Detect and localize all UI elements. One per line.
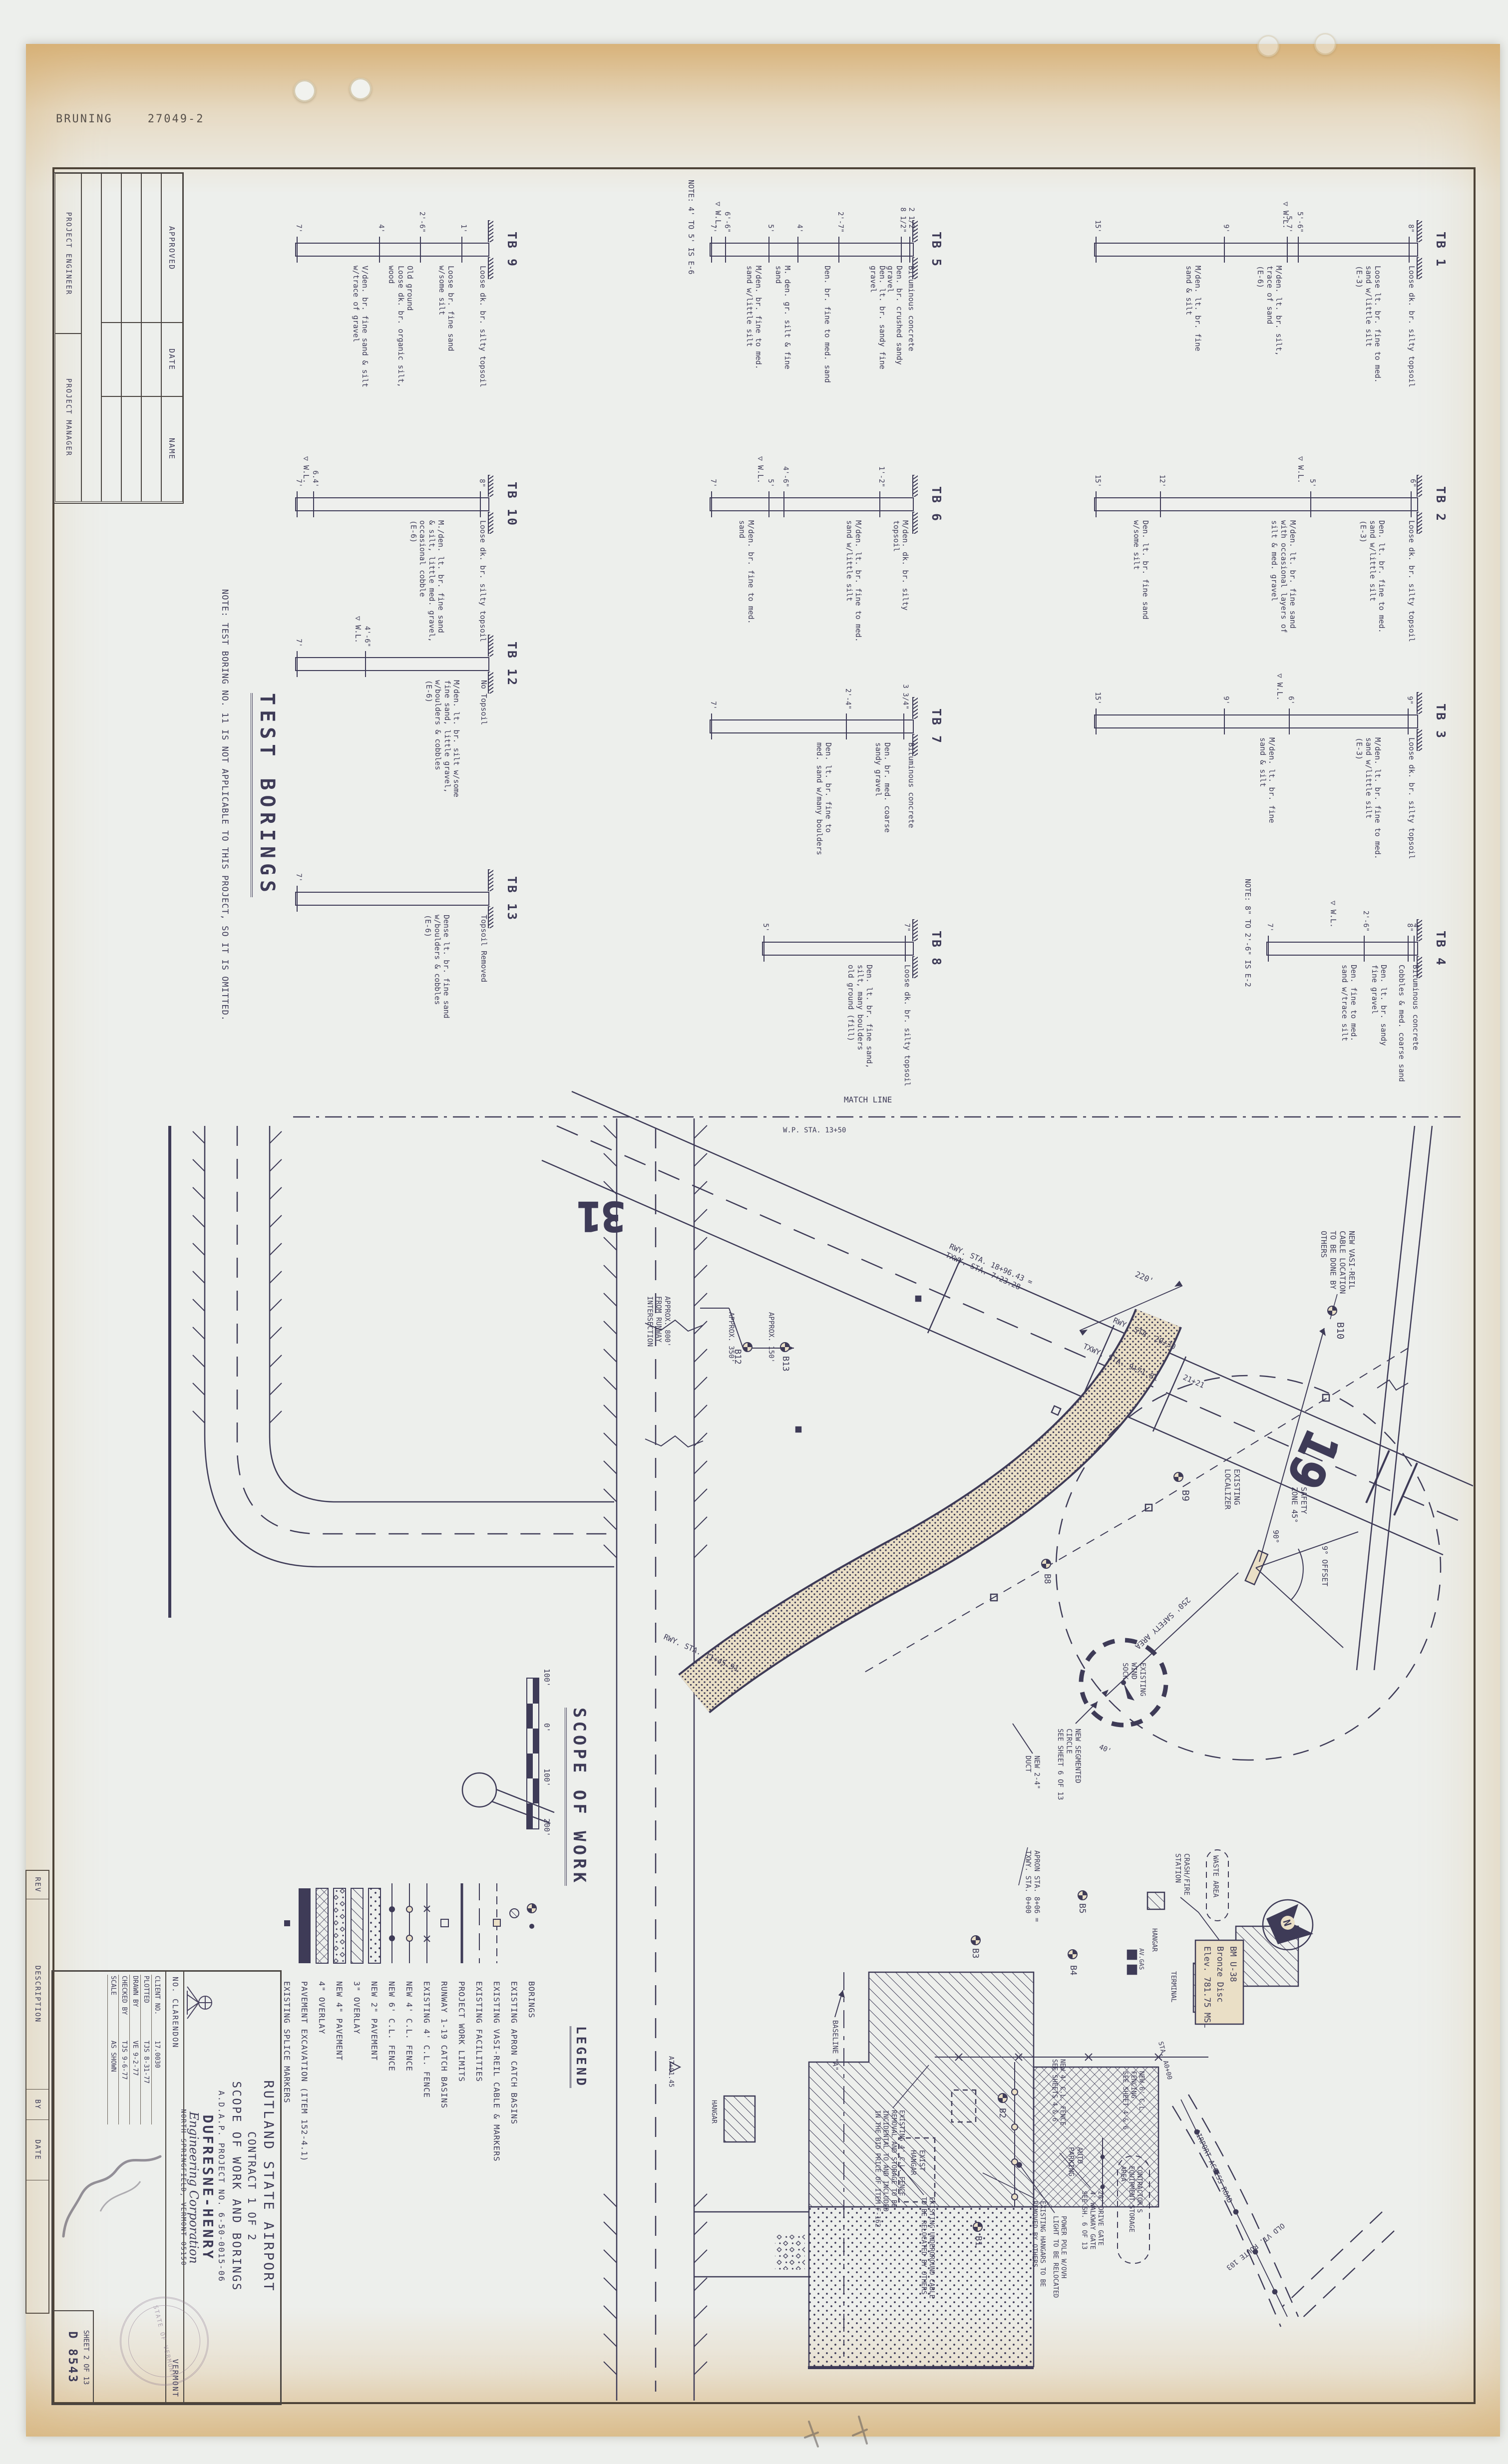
boring-title: TB 7 bbox=[929, 652, 944, 801]
plan-label: NEW SEGMENTEDCIRCLESEE SHEET 6 OF 13 bbox=[1056, 1729, 1082, 1800]
legend-item-rwy-cb: RUNWAY 1-19 CATCH BASINS bbox=[436, 1878, 453, 2109]
boring-column bbox=[1094, 243, 1418, 257]
rwy-cb-symbol bbox=[437, 1878, 451, 1981]
plan-label: HANGAR bbox=[1150, 1928, 1158, 1952]
plan-label: 31 bbox=[577, 1193, 625, 1239]
soil-description: No Topsoil bbox=[479, 680, 488, 805]
plan-label: B1 bbox=[973, 2236, 983, 2246]
depth-tick bbox=[905, 936, 906, 962]
boring-column bbox=[1094, 714, 1418, 728]
soil-description: Den. br. med. coarse sandy gravel bbox=[873, 742, 892, 867]
ground-hatch bbox=[1417, 220, 1422, 242]
boring-title: TB 1 bbox=[1434, 175, 1448, 325]
boring-title: TB 10 bbox=[505, 429, 519, 579]
soil-description: M/den. lt. br. fine to med. sand w/littl… bbox=[1355, 737, 1382, 862]
empty-cell bbox=[121, 396, 142, 502]
soil-description: Den. lt. br. fine sand w/some silt bbox=[1131, 520, 1150, 645]
depth-label: 2'-4" bbox=[844, 656, 852, 709]
test-borings-title: TEST BORINGS bbox=[251, 693, 279, 897]
soil-description: Loose dk. br. silty topsoil bbox=[1407, 520, 1416, 645]
legend-label: EXISTING VASI-REIL CABLE & MARKERS bbox=[492, 1981, 502, 2162]
empty-cell bbox=[121, 322, 142, 397]
boring-column bbox=[295, 497, 489, 511]
boring-column bbox=[1094, 497, 1418, 511]
depth-label: 2'-6" bbox=[418, 179, 426, 233]
boring-symbol bbox=[525, 1878, 539, 1981]
boring-title: TB 9 bbox=[505, 175, 519, 325]
pencil-marks bbox=[779, 2402, 1029, 2462]
depth-label: 4'-6" bbox=[363, 593, 371, 647]
depth-tick bbox=[711, 713, 712, 739]
info-label: SCALE bbox=[109, 1976, 117, 2041]
splice-symbol bbox=[280, 1878, 294, 1981]
legend-label: NEW 4' C.L. FENCE bbox=[405, 1981, 414, 2072]
depth-tick bbox=[1414, 936, 1415, 962]
depth-label: 5'-6" bbox=[1296, 179, 1304, 233]
ground-hatch bbox=[488, 257, 493, 279]
depth-label: 7' bbox=[295, 593, 303, 647]
depth-tick bbox=[1160, 491, 1161, 517]
depth-tick bbox=[297, 491, 298, 517]
swatch-cross-symbol bbox=[315, 1878, 329, 1981]
ground-hatch bbox=[1417, 257, 1422, 279]
depth-label: 7" bbox=[903, 878, 911, 932]
boring-marker bbox=[1042, 1559, 1051, 1568]
stamp-text: STATE OF VERMONT bbox=[152, 2305, 176, 2378]
soil-description: M/den. br. fine to med. sand bbox=[737, 520, 755, 645]
depth-label: 6" bbox=[1409, 433, 1417, 487]
plan-label: 9° OFFSET bbox=[1320, 1546, 1329, 1586]
info-value: VE 9-2-77 bbox=[131, 2041, 139, 2076]
depth-label: 2'-7" bbox=[836, 179, 844, 233]
soil-description: Den. fine to med. sand w/trace silt bbox=[1340, 965, 1358, 1089]
depth-label: 2'-6" bbox=[1362, 878, 1370, 932]
plan-label: APRON STA. 8+06 =TXWY. STA. 0+00 bbox=[1024, 1850, 1041, 1922]
description-header: DESCRIPTION bbox=[26, 1899, 48, 2090]
boring-marker bbox=[1078, 1891, 1087, 1900]
soil-description: Loose br. fine sand w/some silt bbox=[437, 266, 455, 390]
legend-label: BORINGS bbox=[527, 1981, 537, 2018]
info-value: 17.0030 bbox=[153, 2041, 161, 2068]
soil-description: Loose lt. br. fine to med. sand w/little… bbox=[1355, 266, 1382, 390]
scope-of-work-title: SCOPE OF WORK bbox=[565, 1708, 589, 1886]
depth-label: 5' bbox=[761, 878, 769, 932]
depth-label: 5' bbox=[766, 433, 774, 487]
info-label: CLIENT NO. bbox=[153, 1976, 161, 2041]
boring-marker bbox=[1068, 1950, 1077, 1959]
exist-fac-symbol bbox=[472, 1878, 486, 1981]
revision-block: REV DESCRIPTION BY DATE bbox=[25, 1870, 49, 2314]
depth-tick bbox=[365, 651, 366, 677]
water-level-marker: ▽ W.L. bbox=[1296, 438, 1305, 483]
depth-tick bbox=[903, 713, 904, 739]
empty-cell bbox=[141, 396, 162, 502]
legend-label: PROJECT WORK LIMITS bbox=[457, 1981, 467, 2082]
depth-tick bbox=[1224, 708, 1225, 734]
depth-tick bbox=[1298, 237, 1299, 263]
boring-marker bbox=[971, 1936, 980, 1945]
boring-column bbox=[295, 892, 489, 906]
depth-tick bbox=[838, 237, 839, 263]
depth-label: 15' bbox=[1094, 651, 1102, 704]
depth-tick bbox=[711, 491, 712, 517]
sheet-number-cell: SHEET 2 OF 13 D 8543 bbox=[53, 2310, 94, 2404]
legend-label: NEW 2" PAVEMENT bbox=[370, 1981, 379, 2061]
ground-hatch bbox=[1417, 729, 1422, 751]
depth-tick bbox=[1287, 237, 1288, 263]
plan-label: AIRPORT ACCESS ROAD bbox=[1192, 2128, 1233, 2204]
empty-cell bbox=[81, 173, 102, 502]
boring-marker bbox=[780, 1343, 789, 1352]
ground-hatch bbox=[488, 475, 493, 497]
plan-label: NEW 2-4"DUCT bbox=[1024, 1756, 1041, 1789]
drawing-titles: RUTLAND STATE AIRPORT CONTRACT 1 OF 2 SC… bbox=[217, 2032, 276, 2341]
boring-title: TB 12 bbox=[505, 589, 519, 739]
legend-item-boring: BORINGS bbox=[523, 1878, 540, 2018]
landscape-sheet: APPROVED DATE NAME PROJECT ENGINEER PROJ… bbox=[0, 0, 1508, 2464]
boring-column bbox=[295, 243, 489, 257]
depth-label: 9" bbox=[1406, 651, 1414, 704]
depth-label: 6' bbox=[1287, 651, 1295, 704]
soil-description: M./den. lt. br. fine sand & silt, little… bbox=[409, 520, 445, 645]
boring-marker bbox=[743, 1343, 752, 1352]
plan-label: B9 bbox=[1180, 1490, 1191, 1501]
benchmark-note: Elev. 781.75 MSL bbox=[1202, 1946, 1212, 2028]
depth-label: 5' bbox=[766, 179, 774, 233]
legend-item-swatch-cross: 4" OVERLAY bbox=[314, 1878, 331, 2034]
plan-label: B4 bbox=[1068, 1965, 1078, 1975]
plan-label: APPROX. 800'FROM RUNWAYINTERSECTION bbox=[646, 1296, 671, 1347]
project-number: A.D.A.P. PROJECT NO. 6-50-0015-06 bbox=[217, 2032, 226, 2341]
plan-label: BASELINE "A" bbox=[831, 2020, 839, 2071]
soil-description: Den. lt. br. fine to med. sand w/many bo… bbox=[814, 742, 833, 867]
depth-tick bbox=[1268, 936, 1269, 962]
plan-label: POWER POLE W/OVHLIGHT TO BE RELOCATED bbox=[1052, 2216, 1067, 2298]
info-label: DRAWN BY bbox=[131, 1976, 139, 2041]
legend-label: RUNWAY 1-19 CATCH BASINS bbox=[440, 1981, 449, 2109]
empty-cell bbox=[141, 173, 162, 323]
soil-description: Bituminous concrete bbox=[907, 266, 916, 390]
plan-label: B10 bbox=[1335, 1322, 1346, 1339]
ground-hatch bbox=[488, 906, 493, 928]
depth-label: 15' bbox=[1094, 179, 1102, 233]
depth-tick bbox=[783, 491, 784, 517]
soil-description: Dense lt. br. fine sand w/boulders & cob… bbox=[423, 915, 451, 1040]
graphic-scale-bar: 100'0'100'200' bbox=[521, 1678, 551, 1827]
empty-cell bbox=[141, 322, 162, 397]
approval-header: APPROVED bbox=[161, 173, 183, 323]
boring-title: TB 4 bbox=[1434, 874, 1448, 1024]
boring-title: TB 2 bbox=[1434, 429, 1448, 579]
ground-hatch bbox=[488, 672, 493, 694]
depth-label: 4'-6" bbox=[781, 433, 789, 487]
depth-tick bbox=[1364, 936, 1365, 962]
depth-tick bbox=[297, 237, 298, 263]
boring-note: NOTE: 8" TO 2'-6" IS E-2 bbox=[1243, 879, 1252, 987]
legend-label: EXISTING FACILITIES bbox=[475, 1981, 484, 2082]
drawing-info-table: CLIENT NO.17.0030PLOTTEDTJS 8-31-77DRAWN… bbox=[107, 1975, 162, 2124]
legend-item-swatch-diamond: NEW 4" PAVEMENT bbox=[331, 1878, 348, 2061]
depth-tick bbox=[768, 237, 769, 263]
contract-title: CONTRACT 1 OF 2 bbox=[246, 2032, 258, 2341]
scanned-drawing-page: BRUNING27049-2 APPROVED DATE NAME PROJEC… bbox=[0, 0, 1508, 2464]
depth-label: 7' bbox=[295, 179, 303, 233]
work-limits-symbol bbox=[455, 1878, 469, 1981]
plan-label: NEW 4' C.L. FENCESEE SHEETS 4 & 6 bbox=[1051, 2059, 1066, 2125]
vasi-symbol bbox=[490, 1878, 504, 1981]
legend-label: EXISTING APRON CATCH BASINS bbox=[510, 1981, 519, 2124]
empty-cell bbox=[101, 396, 122, 502]
legend-item-catch-basin: EXISTING APRON CATCH BASINS bbox=[506, 1878, 523, 2124]
legend-item-swatch-solid: PAVEMENT EXCAVATION (ITEM 152-4.1) bbox=[296, 1878, 313, 2162]
depth-label: 9' bbox=[1222, 179, 1230, 233]
soil-description: Loose dk. br. silty topsoil bbox=[903, 965, 912, 1089]
fence-o-symbol bbox=[402, 1878, 416, 1981]
boring-column bbox=[710, 243, 914, 257]
depth-tick bbox=[1224, 237, 1225, 263]
sheet-number: SHEET 2 OF 13 bbox=[82, 2311, 90, 2404]
legend-item-fence-dot: NEW 6' C.L. FENCE bbox=[383, 1878, 400, 2072]
soil-description: M/den. lt. br. fine sand & silt bbox=[1184, 266, 1202, 390]
ground-hatch bbox=[488, 869, 493, 891]
info-value: TJS 9-6-77 bbox=[120, 2041, 128, 2080]
fence-dot-symbol bbox=[385, 1878, 399, 1981]
depth-tick bbox=[480, 491, 481, 517]
boring-marker bbox=[1174, 1472, 1183, 1481]
soil-description: Topsoil Removed bbox=[479, 915, 488, 1040]
ground-hatch bbox=[912, 512, 918, 534]
depth-label: 15' bbox=[1094, 433, 1102, 487]
date-header: DATE bbox=[26, 2120, 48, 2180]
scale-tick-label: 200' bbox=[542, 1812, 551, 1842]
ground-hatch bbox=[1417, 475, 1422, 497]
info-row: SCALEAS SHOWN bbox=[107, 1975, 118, 2124]
depth-label: 1' bbox=[459, 179, 467, 233]
depth-label: 4' bbox=[795, 179, 803, 233]
boring-title: TB 3 bbox=[1434, 647, 1448, 796]
plan-label: AV.GAS bbox=[1138, 1948, 1145, 1970]
legend-label: EXISTING 4' C.L. FENCE bbox=[422, 1981, 432, 2098]
empty-cell bbox=[26, 2180, 48, 2313]
info-label: PLOTTED bbox=[142, 1976, 150, 2041]
depth-label: 8" bbox=[478, 433, 486, 487]
plan-label: 90° bbox=[1271, 1530, 1280, 1543]
empty-cell bbox=[121, 173, 142, 323]
depth-tick bbox=[1096, 708, 1097, 734]
boring-column bbox=[762, 942, 914, 956]
depth-tick bbox=[313, 491, 314, 517]
depth-tick bbox=[763, 936, 764, 962]
ground-hatch bbox=[912, 697, 918, 719]
legend-label: NEW 4" PAVEMENT bbox=[335, 1981, 345, 2061]
soil-description: Loose dk. br. silty topsoil bbox=[1407, 266, 1416, 390]
depth-label: 8" bbox=[1406, 878, 1414, 932]
depth-tick bbox=[1289, 708, 1290, 734]
plan-label: B3 bbox=[970, 1948, 980, 1958]
plan-label: SAFETYZONE 45° bbox=[1290, 1487, 1308, 1523]
date-header: DATE bbox=[161, 322, 183, 397]
sheet-title: SCOPE OF WORK AND BORINGS bbox=[230, 2032, 243, 2341]
depth-tick bbox=[909, 237, 910, 263]
legend-label: NEW 6' C.L. FENCE bbox=[387, 1981, 397, 2072]
depth-tick bbox=[1408, 936, 1409, 962]
info-row: DRAWN BYVE 9-2-77 bbox=[129, 1975, 140, 2124]
drawing-number: D 8543 bbox=[66, 2311, 80, 2404]
plan-label: EXISTING UNDERGROUND CABLETO BE RELOCATE… bbox=[920, 2197, 935, 2299]
boring-marker bbox=[973, 2222, 982, 2231]
project-manager-cell: PROJECT MANAGER bbox=[55, 333, 82, 502]
catch-basin-symbol bbox=[507, 1878, 521, 1981]
legend-item-fence-o: NEW 4' C.L. FENCE bbox=[401, 1878, 418, 2072]
scale-tick-label: 100' bbox=[542, 1762, 551, 1792]
ground-hatch bbox=[488, 512, 493, 534]
depth-tick bbox=[379, 237, 380, 263]
plan-label: 220' bbox=[1133, 1269, 1155, 1286]
ground-hatch bbox=[1417, 692, 1422, 714]
soil-description: M/den. lt. br. silt w/some fine sand, li… bbox=[424, 680, 461, 805]
plan-label: B2 bbox=[997, 2108, 1007, 2118]
plan-label: OLD VT. ROUTE 103 bbox=[1225, 2221, 1286, 2272]
water-level-marker: ▽ W.L. bbox=[756, 438, 765, 483]
project-title: RUTLAND STATE AIRPORT bbox=[261, 2032, 276, 2341]
depth-tick bbox=[879, 491, 880, 517]
approval-block: APPROVED DATE NAME PROJECT ENGINEER PROJ… bbox=[53, 172, 184, 504]
town-label: NO. CLARENDON bbox=[171, 1977, 180, 2048]
boring-column bbox=[710, 497, 914, 511]
legend-label: EXISTING SPLICE MARKERS bbox=[283, 1981, 292, 2104]
soil-description: Den. lt. br. fine sand, silt, many bould… bbox=[846, 965, 874, 1089]
boring-marker bbox=[998, 2094, 1007, 2103]
legend-label: 4" OVERLAY bbox=[318, 1981, 327, 2034]
scale-tick-label: 0' bbox=[542, 1713, 551, 1743]
depth-label: 12' bbox=[1158, 433, 1166, 487]
legend-item-swatch-diag: 3" OVERLAY bbox=[349, 1878, 366, 2034]
soil-description: M/den. lt. br. fine sand & silt bbox=[1258, 737, 1276, 862]
depth-tick bbox=[725, 237, 726, 263]
soil-description: M/den. lt. br. fine to med. sand w/littl… bbox=[844, 520, 863, 645]
plan-label: TERMINAL bbox=[1169, 1971, 1177, 2003]
scale-bar bbox=[526, 1678, 539, 1829]
plan-label: W.P. STA. 13+50 bbox=[783, 1126, 846, 1134]
boring-title: TB 8 bbox=[929, 874, 944, 1024]
soil-description: Old ground Loose dk. br. organic silt, w… bbox=[387, 266, 414, 390]
depth-tick bbox=[711, 237, 712, 263]
empty-cell bbox=[101, 322, 122, 397]
plan-label: EXISTINGLOCALIZER bbox=[1223, 1469, 1241, 1510]
soil-description: M/den. br. fine to med. sand w/little si… bbox=[745, 266, 763, 390]
depth-tick bbox=[420, 237, 421, 263]
soil-description: V/den. br. fine sand & silt w/trace of g… bbox=[351, 266, 370, 390]
rev-header: REV bbox=[26, 1871, 48, 1899]
boring-column bbox=[710, 719, 914, 733]
depth-tick bbox=[901, 237, 902, 263]
plan-label: A7+01.45 bbox=[667, 2056, 675, 2088]
water-level-marker: ▽ W.L. bbox=[302, 438, 311, 483]
swatch-diamond-symbol bbox=[333, 1878, 347, 1981]
depth-tick bbox=[797, 237, 798, 263]
ground-hatch bbox=[1417, 512, 1422, 534]
boring-title: TB 6 bbox=[929, 429, 944, 579]
ground-hatch bbox=[488, 635, 493, 657]
depth-tick bbox=[297, 886, 298, 912]
info-row: PLOTTEDTJS 8-31-77 bbox=[140, 1975, 151, 2124]
name-header: NAME bbox=[161, 396, 183, 502]
ground-hatch bbox=[912, 919, 918, 941]
water-level-marker: ▽ W.L. bbox=[714, 184, 723, 229]
plan-label: WASTE AREA bbox=[1211, 1855, 1219, 1898]
depth-label: 2 1/2" bbox=[907, 179, 915, 233]
plan-label: 40' bbox=[1098, 1743, 1113, 1756]
soil-description: Loose dk. br. silty topsoil bbox=[1407, 737, 1416, 862]
soil-description: Den. lt. br. sandy fine gravel bbox=[868, 266, 887, 390]
fence-x-symbol bbox=[420, 1878, 434, 1981]
depth-tick bbox=[768, 491, 769, 517]
benchmark-note: BM U-38 bbox=[1228, 1946, 1238, 1982]
legend-title: LEGEND bbox=[570, 2026, 588, 2088]
depth-label: 6.4' bbox=[311, 433, 319, 487]
ground-hatch bbox=[912, 475, 918, 497]
depth-tick bbox=[1408, 708, 1409, 734]
plan-label: B5 bbox=[1077, 1903, 1087, 1913]
plan-label: EXISTINGWINDSOCK bbox=[1121, 1663, 1146, 1696]
boring-title: TB 5 bbox=[929, 175, 944, 325]
legend-item-vasi: EXISTING VASI-REIL CABLE & MARKERS bbox=[488, 1878, 505, 2162]
plan-label: B8 bbox=[1042, 1574, 1052, 1584]
legend-item-fence-x: EXISTING 4' C.L. FENCE bbox=[418, 1878, 435, 2098]
legend-label: 3" OVERLAY bbox=[353, 1981, 362, 2034]
info-row: CLIENT NO.17.0030 bbox=[151, 1975, 162, 2124]
depth-label: 7' bbox=[709, 656, 717, 709]
depth-label: 7' bbox=[295, 828, 303, 882]
plan-label: MATCH LINE bbox=[844, 1095, 892, 1104]
water-level-marker: ▽ W.L. bbox=[1275, 656, 1284, 701]
depth-tick bbox=[846, 713, 847, 739]
soil-description: Den. br. fine to med. sand bbox=[823, 266, 832, 390]
info-label: CHECKED BY bbox=[120, 1976, 128, 2041]
depth-label: 8 1/2" bbox=[899, 179, 907, 233]
info-value: AS SHOWN bbox=[109, 2041, 117, 2072]
legend-item-exist-fac: EXISTING FACILITIES bbox=[471, 1878, 488, 2082]
plan-label: 20' DRIVE GATE4' WALKWAY GATESEE SH. 6 O… bbox=[1081, 2191, 1105, 2249]
depth-label: 7' bbox=[1266, 878, 1274, 932]
ground-hatch bbox=[912, 956, 918, 978]
boring-column bbox=[1266, 942, 1418, 956]
depth-label: 8" bbox=[1407, 179, 1415, 233]
depth-label: 4' bbox=[377, 179, 385, 233]
depth-tick bbox=[1310, 491, 1311, 517]
water-level-marker: ▽ W.L. bbox=[1281, 184, 1290, 229]
soil-description: Loose dk. br. silty topsoil bbox=[478, 266, 487, 390]
scale-tick-label: 100' bbox=[542, 1663, 551, 1693]
depth-tick bbox=[1096, 491, 1097, 517]
depth-label: 3 3/4" bbox=[901, 656, 909, 709]
soil-description: M. den. gr. silt & fine sand bbox=[773, 266, 792, 390]
plan-label: CRASH/FIRESTATION bbox=[1174, 1853, 1191, 1895]
soil-description: M/den. lt. br. fine sand with occasional… bbox=[1270, 520, 1297, 645]
boring-column bbox=[295, 657, 489, 671]
boring-note: NOTE: 4' TO 5' IS E-6 bbox=[687, 180, 696, 275]
soil-description: Den. lt. br. sandy fine gravel bbox=[1370, 965, 1388, 1089]
depth-label: 7' bbox=[709, 433, 717, 487]
by-header: BY bbox=[26, 2090, 48, 2120]
swatch-dots-symbol bbox=[368, 1878, 381, 1981]
boring-title: TB 13 bbox=[505, 824, 519, 974]
plan-label: NEW VASI-REILCABLE LOCATIONTO BE DONE BY… bbox=[1319, 1231, 1356, 1294]
depth-label: 1'-2" bbox=[877, 433, 885, 487]
depth-tick bbox=[297, 651, 298, 677]
test-borings-note: NOTE: TEST BORING NO. 11 IS NOT APPLICAB… bbox=[220, 589, 230, 1021]
soil-description: M/den. lt. br. silt, trace of sand (E-6) bbox=[1256, 266, 1283, 390]
